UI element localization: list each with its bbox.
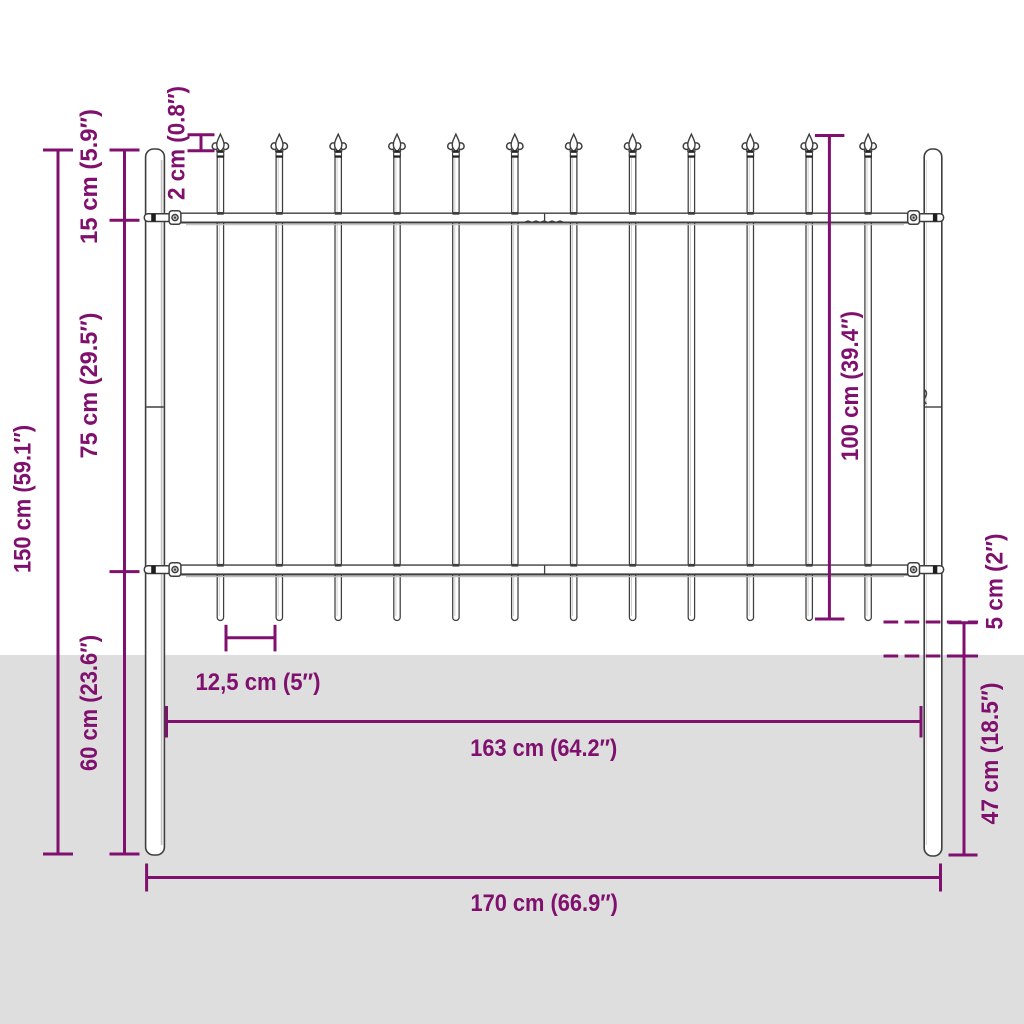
svg-text:75 cm (29.5″): 75 cm (29.5″) (76, 313, 103, 459)
svg-text:150 cm (59.1″): 150 cm (59.1″) (9, 425, 36, 573)
svg-text:170 cm (66.9″): 170 cm (66.9″) (470, 890, 618, 917)
svg-text:15 cm (5.9″): 15 cm (5.9″) (76, 109, 103, 244)
svg-text:47 cm (18.5″): 47 cm (18.5″) (977, 683, 1004, 825)
svg-text:5 cm (2″): 5 cm (2″) (982, 534, 1009, 630)
svg-text:100 cm (39.4″): 100 cm (39.4″) (837, 311, 864, 461)
svg-text:60 cm (23.6″): 60 cm (23.6″) (76, 635, 103, 771)
svg-text:12,5 cm (5″): 12,5 cm (5″) (196, 669, 321, 696)
svg-text:2 cm (0.8″): 2 cm (0.8″) (164, 86, 191, 200)
svg-text:163 cm (64.2″): 163 cm (64.2″) (470, 735, 617, 762)
